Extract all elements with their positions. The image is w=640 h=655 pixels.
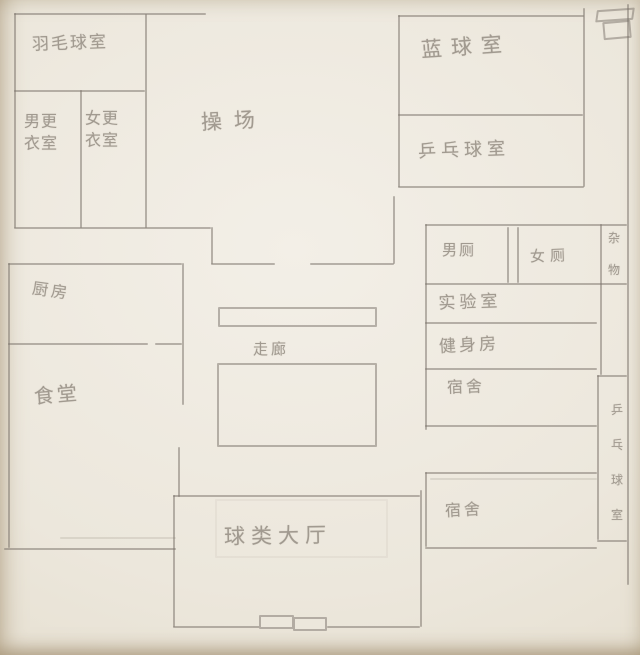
wall [425, 368, 597, 370]
toilet-divider-wall [507, 227, 509, 283]
room-label-hall: 球类大厅 [224, 522, 332, 552]
wall [398, 186, 584, 188]
wall [4, 548, 176, 550]
room-label-badminton: 羽毛球室 [32, 31, 109, 57]
room-label-dorm-upper: 宿舍 [447, 377, 486, 400]
corridor-block [217, 363, 377, 447]
room-label-playground: 操场 [200, 106, 267, 138]
wall [327, 626, 420, 628]
wall [8, 263, 10, 548]
wall [173, 495, 175, 627]
wall [14, 13, 16, 228]
wall [425, 283, 627, 285]
wall [310, 263, 394, 265]
outer-wall [627, 4, 629, 585]
wall [182, 263, 184, 405]
wall [597, 375, 627, 377]
room-label-dorm-lower: 宿舍 [444, 499, 483, 523]
room-label-lab: 实验室 [438, 290, 502, 315]
wall [425, 224, 627, 226]
wall [173, 495, 420, 497]
room-label-mens-changing: 男更 衣室 [24, 111, 58, 154]
wall [425, 472, 597, 474]
wall [14, 227, 211, 229]
room-label-storage: 杂 物 [608, 222, 620, 286]
room-label-gym: 健身房 [438, 333, 499, 359]
room-label-table-tennis-side: 乒 乓 球 室 [611, 393, 623, 533]
wall [425, 472, 427, 547]
wall [425, 425, 597, 427]
wall [597, 375, 599, 540]
wall [14, 13, 206, 15]
room-label-canteen: 食堂 [33, 381, 81, 412]
wall [8, 263, 182, 265]
wall [393, 196, 395, 264]
room-label-kitchen: 厨房 [31, 279, 72, 306]
room-label-womens-toilet: 女厕 [530, 246, 571, 268]
wall [211, 263, 275, 265]
room-label-basketball: 蓝球室 [420, 31, 512, 66]
wall [425, 322, 597, 324]
wall [145, 14, 147, 228]
wall [597, 540, 627, 542]
floor-plan-sketch: 羽毛球室 男更 衣室 女更 衣室 操场 蓝球室 乒乓球室 男厕 女厕 杂 物 实… [0, 0, 640, 655]
wall [425, 547, 597, 549]
door-leaf [293, 617, 327, 631]
wall [155, 343, 182, 345]
wall [173, 626, 260, 628]
room-label-womens-changing: 女更 衣室 [85, 108, 119, 151]
wall [8, 343, 148, 345]
wall [211, 227, 213, 264]
sketch-line [430, 478, 597, 480]
wall [398, 15, 584, 17]
sketch-line [60, 537, 176, 539]
door-leaf [259, 615, 294, 629]
corridor-block [218, 307, 377, 327]
wall [80, 90, 82, 228]
toilet-divider-wall [517, 227, 519, 283]
wall [425, 224, 427, 430]
wall [600, 224, 602, 375]
wall [583, 8, 585, 187]
wall [178, 447, 180, 497]
wall [398, 15, 400, 187]
wall [420, 490, 422, 627]
room-label-corridor: 走廊 [253, 340, 289, 360]
cabinet-body [602, 20, 631, 40]
room-label-table-tennis: 乒乓球室 [418, 136, 511, 163]
room-label-mens-toilet: 男厕 [442, 241, 476, 261]
wall [398, 114, 583, 116]
